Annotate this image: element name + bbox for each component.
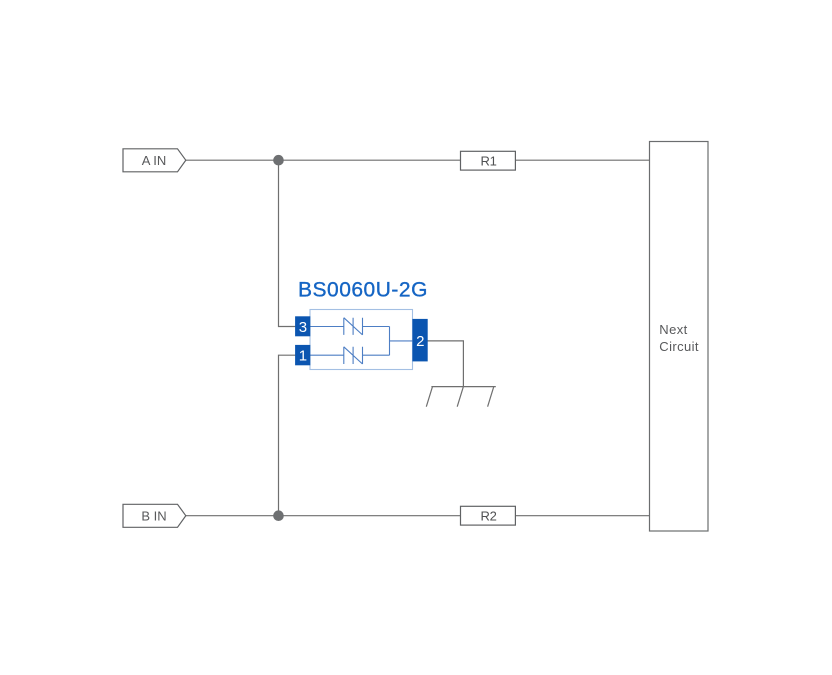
svg-text:Next: Next bbox=[659, 322, 687, 337]
svg-text:2: 2 bbox=[416, 333, 424, 350]
svg-text:BS0060U-2G: BS0060U-2G bbox=[298, 279, 428, 302]
svg-text:A IN: A IN bbox=[142, 153, 167, 168]
svg-text:Circuit: Circuit bbox=[659, 339, 699, 354]
svg-text:B IN: B IN bbox=[141, 509, 166, 524]
svg-text:R2: R2 bbox=[480, 508, 496, 523]
svg-text:1: 1 bbox=[299, 348, 307, 365]
svg-text:R1: R1 bbox=[480, 153, 496, 168]
svg-text:3: 3 bbox=[299, 319, 307, 336]
